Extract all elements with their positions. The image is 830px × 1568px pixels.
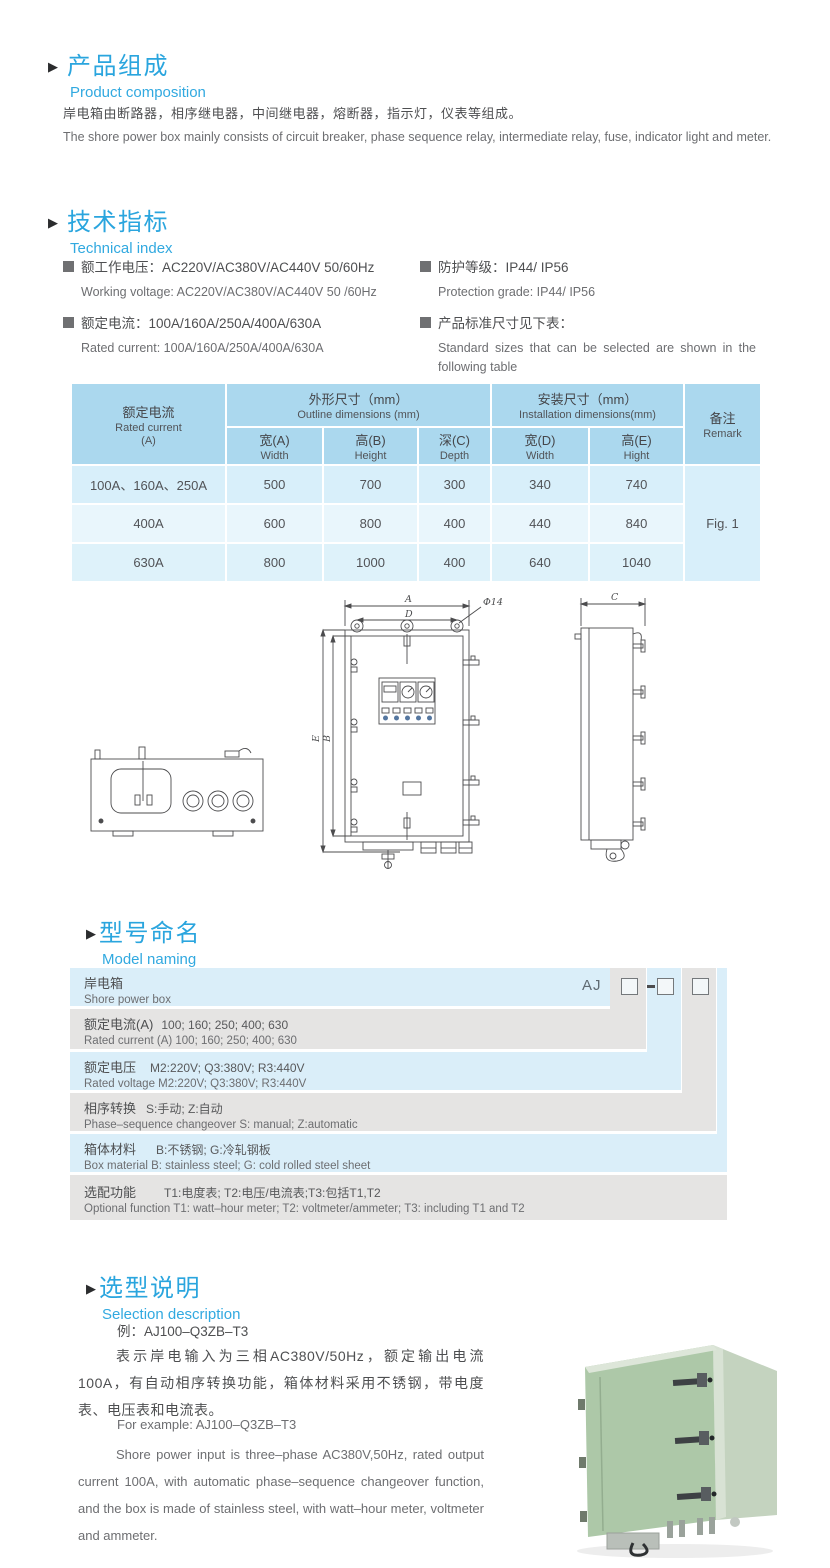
naming-row-current: 额定电流(A)100; 160; 250; 400; 630 Rated cur…: [70, 1009, 646, 1049]
header-text: (A): [72, 435, 225, 447]
naming-row-phase: 相序转换S:手动; Z:自动 Phase–sequence changeover…: [70, 1093, 716, 1131]
side-view-drawing: C: [555, 588, 680, 878]
subheader-width-d: 宽(D) Width: [491, 427, 589, 465]
cell-value: 500: [226, 465, 323, 504]
naming-label-en: Rated current (A) 100; 160; 250; 400; 63…: [70, 1035, 646, 1047]
latch-icon: [463, 716, 479, 725]
model-prefix: AJ: [582, 977, 602, 994]
subheader-width-a: 宽(A) Width: [226, 427, 323, 465]
selection-example-en: For example: AJ100–Q3ZB–T3: [117, 1417, 296, 1432]
header-outline-group: 外形尺寸（mm） Outline dimensions (mm): [226, 383, 491, 427]
naming-label-cn: 箱体材料: [84, 1142, 136, 1157]
section-title-cn: 技术指标: [67, 209, 169, 236]
selection-body-cn: 表示岸电输入为三相AC380V/50Hz，额定输出电流100A，有自动相序转换功…: [78, 1343, 484, 1424]
header-text: Outline dimensions (mm): [227, 409, 490, 421]
model-naming-table: 岸电箱 Shore power box 额定电流(A)100; 160; 250…: [70, 968, 760, 1223]
hinge-icon: [578, 1399, 587, 1522]
subheader-depth-c: 深(C) Depth: [418, 427, 491, 465]
dim-label-phi14: Φ14: [483, 597, 503, 608]
header-text: Depth: [419, 450, 490, 462]
indicator-lamps: [382, 708, 433, 721]
square-bullet-icon: [63, 261, 74, 272]
header-text: 宽(A): [227, 430, 322, 449]
spec-cn-text: 额定电流：100A/160A/250A/400A/630A: [81, 316, 321, 331]
cell-current: 630A: [71, 543, 226, 582]
product-photo: [545, 1315, 800, 1560]
header-rated-current: 额定电流 Rated current (A): [71, 383, 226, 465]
dimension-table: 额定电流 Rated current (A) 外形尺寸（mm） Outline …: [70, 382, 762, 583]
spec-working-voltage: 额工作电压：AC220V/AC380V/AC440V 50/60Hz Worki…: [63, 256, 413, 302]
spec-column-right: 防护等级：IP44/ IP56 Protection grade: IP44/ …: [420, 256, 758, 387]
table-group-header-row: 额定电流 Rated current (A) 外形尺寸（mm） Outline …: [71, 383, 761, 427]
hinge-icon: [351, 779, 357, 792]
bottom-view-drawing: [85, 743, 280, 848]
square-bullet-icon: [63, 317, 74, 328]
section-technical-index: ▶技术指标 Technical index: [48, 202, 173, 257]
section-heading: ▶技术指标: [48, 202, 173, 237]
naming-label-cn: 额定电压: [84, 1060, 136, 1075]
naming-label-en: Phase–sequence changeover S: manual; Z:a…: [70, 1119, 716, 1131]
model-code-box-1: [621, 978, 638, 995]
header-text: Remark: [685, 428, 760, 440]
technical-drawings: A D Φ14 E B: [70, 585, 760, 885]
header-text: 外形尺寸（mm）: [227, 389, 490, 408]
section-heading: ▶型号命名: [86, 913, 201, 948]
catalog-page: ▶产品组成 Product composition 岸电箱由断路器，相序继电器，…: [0, 0, 830, 1568]
table-row: 400A 600 800 400 440 840: [71, 504, 761, 543]
header-text: Rated current: [72, 422, 225, 434]
spec-cn-text: 额工作电压：AC220V/AC380V/AC440V 50/60Hz: [81, 260, 374, 275]
header-text: Hight: [590, 450, 683, 462]
latch-icon: [633, 732, 645, 744]
section-heading: ▶选型说明: [86, 1268, 240, 1303]
cell-value: 1000: [323, 543, 418, 582]
section-title-cn: 产品组成: [67, 53, 169, 80]
cell-value: 640: [491, 543, 589, 582]
header-text: 高(E): [590, 430, 683, 449]
naming-row-material: 箱体材料B:不锈钢; G:冷轧钢板 Box material B: stainl…: [70, 1134, 727, 1172]
spec-column-left: 额工作电压：AC220V/AC380V/AC440V 50/60Hz Worki…: [63, 256, 413, 368]
naming-values-cn: M2:220V; Q3:380V; R3:440V: [150, 1061, 305, 1075]
latch-icon: [463, 776, 479, 785]
section-title-en: Technical index: [70, 240, 173, 257]
naming-values-cn: S:手动; Z:自动: [146, 1102, 223, 1116]
header-text: 安装尺寸（mm）: [492, 389, 683, 408]
dim-label-C: C: [611, 592, 619, 603]
section-title-cn: 选型说明: [99, 1275, 201, 1302]
spec-protection-grade: 防护等级：IP44/ IP56 Protection grade: IP44/ …: [420, 256, 758, 302]
cell-value: 600: [226, 504, 323, 543]
front-view-drawing: A D Φ14 E B: [305, 590, 515, 880]
cell-value: 740: [589, 465, 684, 504]
photo-shadow: [577, 1544, 773, 1558]
naming-label-en: Shore power box: [70, 994, 610, 1006]
model-code-dash: [647, 985, 655, 988]
spec-cn-text: 防护等级：IP44/ IP56: [438, 260, 569, 275]
composition-body-en: The shore power box mainly consists of c…: [63, 130, 771, 144]
latch-icon: [633, 686, 645, 698]
section-heading: ▶产品组成: [48, 46, 206, 81]
dim-label-B: B: [322, 735, 333, 743]
section-arrow-icon: ▶: [86, 926, 96, 941]
header-text: 备注: [685, 408, 760, 427]
naming-row-voltage: 额定电压M2:220V; Q3:380V; R3:440V Rated volt…: [70, 1052, 681, 1090]
section-title-en: Product composition: [70, 84, 206, 101]
naming-label-en: Rated voltage M2:220V; Q3:380V; R3:440V: [70, 1078, 681, 1090]
composition-body-cn: 岸电箱由断路器，相序继电器，中间继电器，熔断器，指示灯，仪表等组成。: [63, 103, 522, 122]
section-arrow-icon: ▶: [48, 59, 58, 74]
square-bullet-icon: [420, 261, 431, 272]
header-remark: 备注 Remark: [684, 383, 761, 465]
spec-rated-current: 额定电流：100A/160A/250A/400A/630A Rated curr…: [63, 312, 413, 358]
cell-value: 800: [323, 504, 418, 543]
naming-values-cn: 100; 160; 250; 400; 630: [161, 1018, 288, 1032]
cell-value: 400: [418, 504, 491, 543]
cell-value: 340: [491, 465, 589, 504]
cell-value: 440: [491, 504, 589, 543]
spec-standard-sizes: 产品标准尺寸见下表： Standard sizes that can be se…: [420, 312, 758, 377]
section-arrow-icon: ▶: [86, 1281, 96, 1296]
header-text: 额定电流: [72, 402, 225, 421]
latch-icon: [633, 778, 645, 790]
header-text: Width: [492, 450, 588, 462]
section-title-en: Model naming: [102, 951, 201, 968]
dim-label-E: E: [311, 735, 322, 743]
section-product-composition: ▶产品组成 Product composition: [48, 46, 206, 101]
square-bullet-icon: [420, 317, 431, 328]
header-install-group: 安装尺寸（mm） Installation dimensions(mm): [491, 383, 684, 427]
naming-label-en: Box material B: stainless steel; G: cold…: [70, 1160, 727, 1172]
cell-value: 300: [418, 465, 491, 504]
cell-remark: Fig. 1: [684, 465, 761, 582]
hinge-icon: [351, 659, 357, 672]
spec-cn-text: 产品标准尺寸见下表：: [438, 316, 573, 331]
latch-icon: [463, 656, 479, 665]
subheader-height-b: 高(B) Height: [323, 427, 418, 465]
header-text: 宽(D): [492, 430, 588, 449]
latch-icon: [633, 640, 645, 652]
cell-value: 840: [589, 504, 684, 543]
section-arrow-icon: ▶: [48, 215, 58, 230]
spec-en-text: Protection grade: IP44/ IP56: [438, 283, 758, 302]
model-code-box-3: [692, 978, 709, 995]
spec-en-text: Standard sizes that can be selected are …: [438, 339, 756, 377]
table-row: 100A、160A、250A 500 700 300 340 740 Fig. …: [71, 465, 761, 504]
spec-en-text: Working voltage: AC220V/AC380V/AC440V 50…: [81, 283, 413, 302]
selection-body-en: Shore power input is three–phase AC380V,…: [78, 1441, 484, 1549]
header-text: 深(C): [419, 430, 490, 449]
cell-value: 800: [226, 543, 323, 582]
selection-example-cn: 例：AJ100–Q3ZB–T3: [117, 1320, 248, 1340]
hinge-icon: [351, 819, 357, 832]
naming-label-cn: 选配功能: [84, 1185, 136, 1200]
naming-label-cn: 额定电流(A): [84, 1017, 153, 1032]
header-text: Installation dimensions(mm): [492, 409, 683, 421]
subheader-height-e: 高(E) Hight: [589, 427, 684, 465]
dimension-table-wrap: 额定电流 Rated current (A) 外形尺寸（mm） Outline …: [70, 382, 762, 583]
table-row: 630A 800 1000 400 640 1040: [71, 543, 761, 582]
latch-icon: [633, 818, 645, 830]
latch-icon: [463, 816, 479, 825]
cell-value: 400: [418, 543, 491, 582]
header-text: 高(B): [324, 430, 417, 449]
naming-values-cn: B:不锈钢; G:冷轧钢板: [156, 1143, 271, 1157]
cell-value: 700: [323, 465, 418, 504]
dim-label-A: A: [404, 594, 412, 605]
section-selection-description: ▶选型说明 Selection description: [86, 1268, 240, 1323]
dim-label-D: D: [404, 609, 413, 620]
model-code-box-2: [657, 978, 674, 995]
cell-value: 1040: [589, 543, 684, 582]
section-title-cn: 型号命名: [99, 920, 201, 947]
naming-values-cn: T1:电度表; T2:电压/电流表;T3:包括T1,T2: [164, 1186, 381, 1200]
header-text: Height: [324, 450, 417, 462]
naming-label-en: Optional function T1: watt–hour meter; T…: [70, 1203, 727, 1215]
hinge-icon: [351, 719, 357, 732]
naming-row-product: 岸电箱 Shore power box: [70, 968, 610, 1006]
section-model-naming: ▶型号命名 Model naming: [86, 913, 201, 968]
header-text: Width: [227, 450, 322, 462]
spec-en-text: Rated current: 100A/160A/250A/400A/630A: [81, 339, 413, 358]
cell-current: 400A: [71, 504, 226, 543]
naming-label-cn: 相序转换: [84, 1101, 136, 1116]
naming-row-optional: 选配功能T1:电度表; T2:电压/电流表;T3:包括T1,T2 Optiona…: [70, 1175, 727, 1220]
cell-current: 100A、160A、250A: [71, 465, 226, 504]
naming-label-cn: 岸电箱: [84, 976, 123, 991]
